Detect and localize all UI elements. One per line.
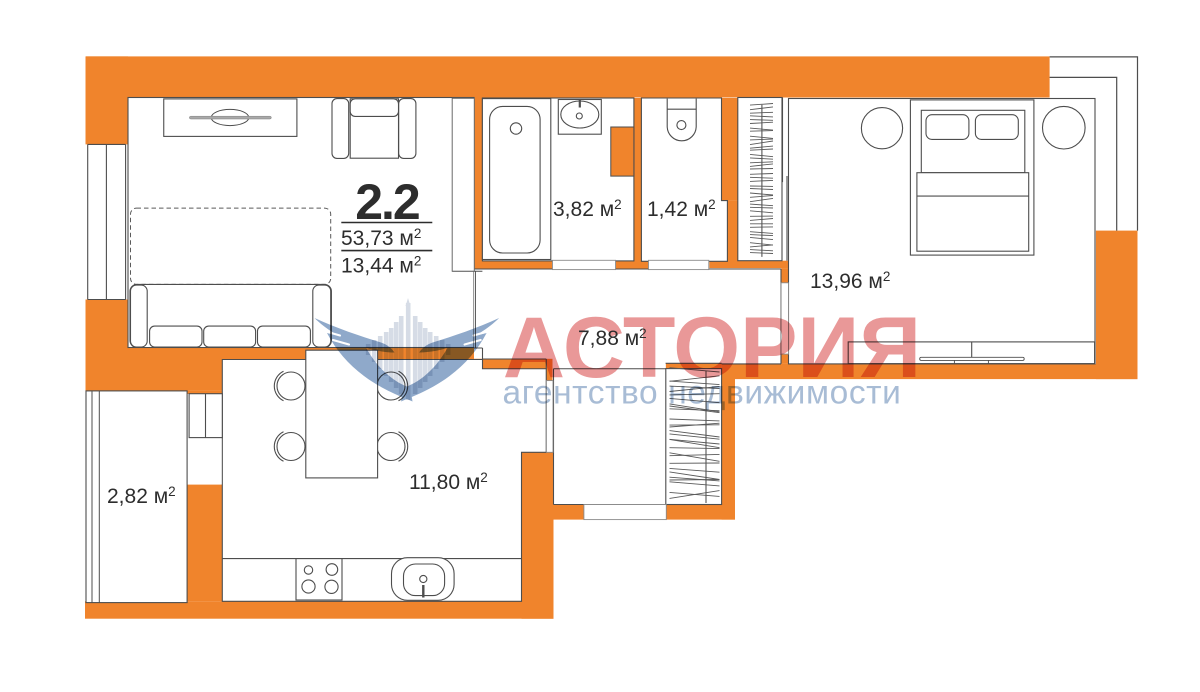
svg-text:53,73 м2: 53,73 м2: [341, 226, 421, 250]
svg-text:2.2: 2.2: [355, 174, 419, 230]
svg-text:13,96 м2: 13,96 м2: [810, 269, 890, 293]
svg-text:13,44 м2: 13,44 м2: [341, 254, 421, 278]
svg-text:11,80 м2: 11,80 м2: [409, 470, 488, 494]
svg-text:1,42 м2: 1,42 м2: [647, 197, 716, 221]
svg-text:агентство недвижимости: агентство недвижимости: [503, 375, 902, 412]
svg-text:3,82 м2: 3,82 м2: [553, 197, 622, 221]
svg-text:2,82 м2: 2,82 м2: [107, 484, 176, 508]
svg-text:7,88 м2: 7,88 м2: [578, 326, 647, 350]
